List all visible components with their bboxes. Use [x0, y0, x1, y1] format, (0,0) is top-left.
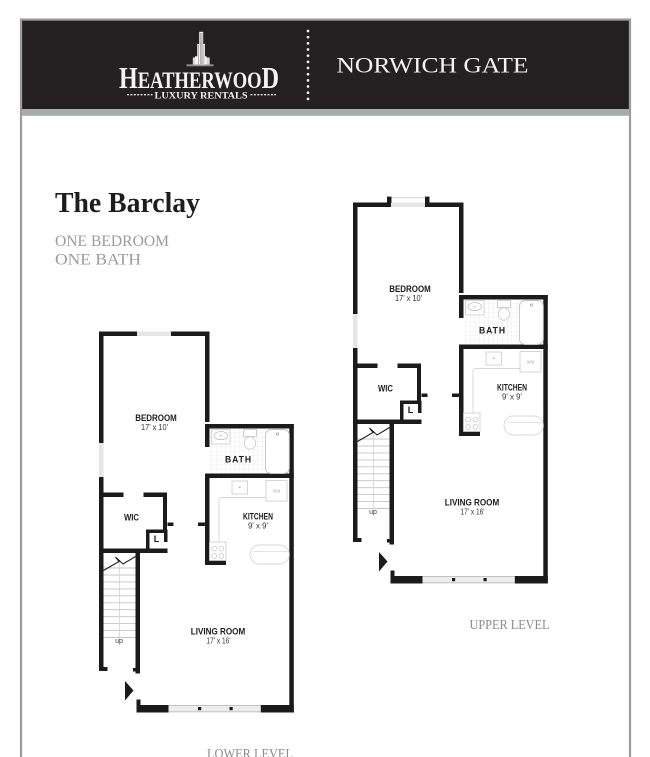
- svg-text:9' x 9': 9' x 9': [502, 393, 523, 402]
- svg-text:ONE BATH: ONE BATH: [55, 252, 141, 269]
- svg-text:L: L: [154, 534, 160, 544]
- svg-text:The Barclay: The Barclay: [55, 188, 200, 219]
- svg-text:UPPER LEVEL: UPPER LEVEL: [470, 618, 550, 633]
- svg-text:KITCHEN: KITCHEN: [243, 512, 273, 522]
- svg-text:9' x 9': 9' x 9': [248, 522, 269, 531]
- svg-text:WIC: WIC: [124, 513, 139, 523]
- svg-text:L: L: [408, 405, 414, 415]
- svg-text:up: up: [115, 638, 123, 645]
- svg-text:up: up: [369, 509, 377, 516]
- svg-text:LOWER LEVEL: LOWER LEVEL: [207, 747, 293, 757]
- svg-text:KITCHEN: KITCHEN: [497, 383, 527, 393]
- svg-text:W/d: W/d: [273, 489, 281, 494]
- svg-text:17' x 16': 17' x 16': [461, 507, 485, 516]
- svg-text:LUXURY RENTALS: LUXURY RENTALS: [155, 91, 248, 101]
- svg-text:BEDROOM: BEDROOM: [135, 413, 177, 423]
- svg-text:BATH: BATH: [479, 326, 506, 336]
- svg-text:WIC: WIC: [378, 384, 393, 394]
- svg-text:BEDROOM: BEDROOM: [389, 284, 431, 294]
- svg-text:W/d: W/d: [527, 360, 535, 365]
- svg-text:17' x 10': 17' x 10': [395, 294, 422, 303]
- svg-text:17' x 10': 17' x 10': [141, 423, 168, 432]
- svg-text:NORWICH GATE: NORWICH GATE: [337, 53, 529, 78]
- svg-text:BATH: BATH: [225, 455, 252, 465]
- svg-text:ONE BEDROOM: ONE BEDROOM: [55, 233, 169, 250]
- svg-text:17' x 16': 17' x 16': [207, 636, 231, 645]
